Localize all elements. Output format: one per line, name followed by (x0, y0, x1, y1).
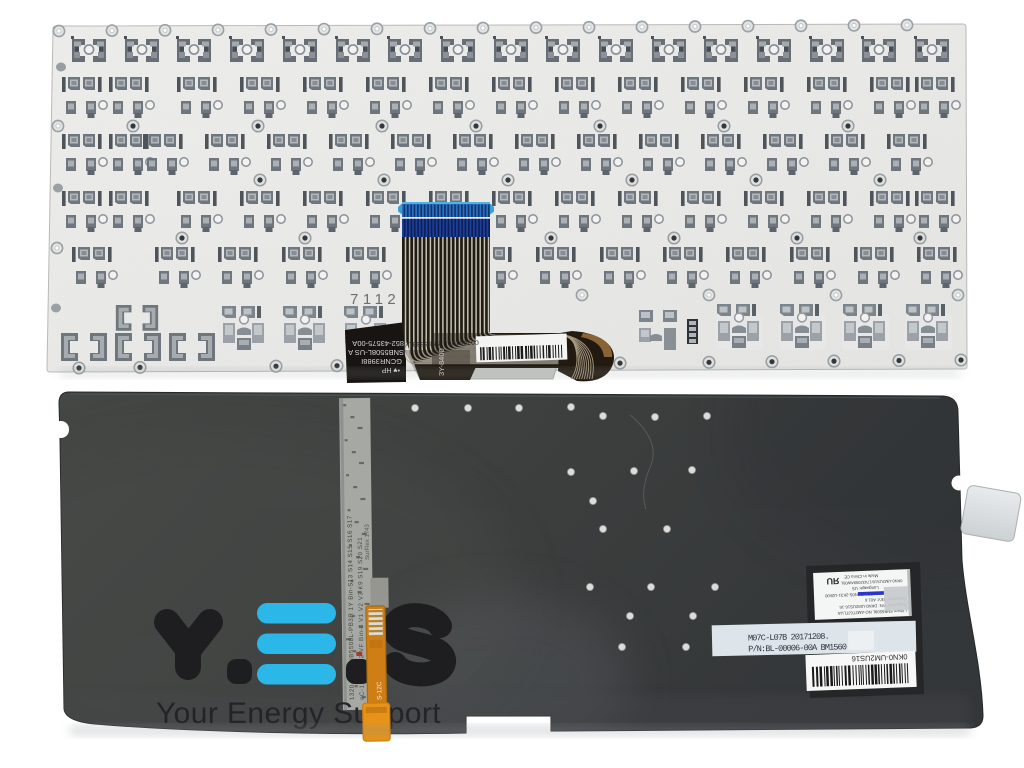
svg-text:GCNR3988I: GCNR3988I (361, 357, 402, 366)
svg-text:S-12C: S-12C (376, 681, 383, 700)
svg-text:7112: 7112 (350, 291, 400, 308)
svg-text:Your Energy Support: Your Energy Support (156, 697, 441, 730)
svg-text:SurFlex 1743: SurFlex 1743 (365, 523, 371, 559)
svg-text:SNB5508L-US A: SNB5508L-US A (348, 348, 404, 357)
svg-text:852-43575-00A: 852-43575-00A (352, 339, 404, 348)
svg-text:ЯU: ЯU (826, 576, 839, 587)
svg-text:M07C-L07B 20171208.: M07C-L07B 20171208. (748, 632, 829, 644)
